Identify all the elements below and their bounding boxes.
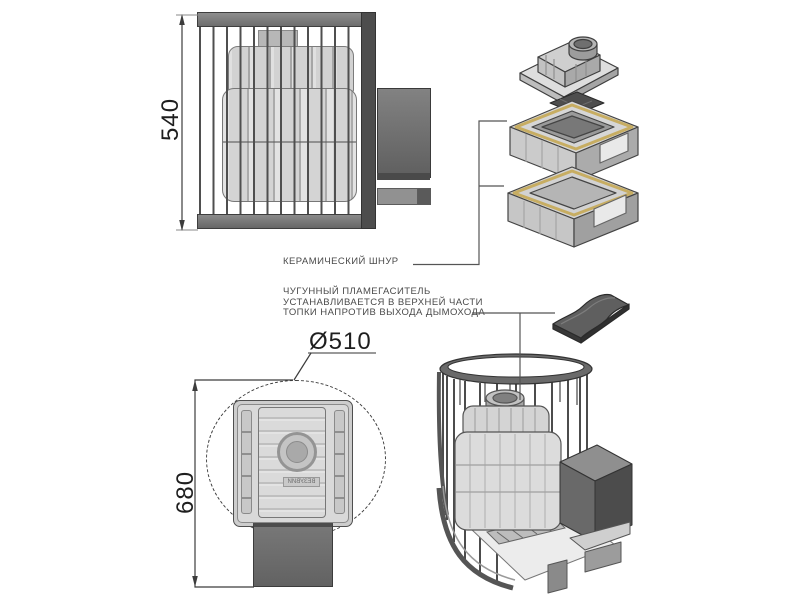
firebox-bottom-section xyxy=(508,167,638,247)
stone-cage-side xyxy=(197,12,376,229)
note-line-3: ТОПКИ НАПРОТИВ ВЫХОДА ДЫМОХОДА xyxy=(283,308,485,319)
left-rail xyxy=(241,410,252,514)
stove-top-plan: ВЕЗУВИЙ xyxy=(233,400,353,527)
side-view-figure: 540 xyxy=(0,0,450,240)
stove-technical-diagram: 540 xyxy=(0,0,800,600)
fuel-channel-plan xyxy=(253,523,333,587)
dimension-680-label: 680 xyxy=(172,474,198,514)
chimney-hole-ring xyxy=(277,432,317,472)
ceramic-cord-label: КЕРАМИЧЕСКИЙ ШНУР xyxy=(283,256,399,267)
fuel-channel-iso xyxy=(548,445,632,593)
channel-ledge xyxy=(377,173,430,180)
exploded-view-figure xyxy=(480,15,650,260)
cage-top-ring xyxy=(440,354,592,384)
top-view-figure: ВЕЗУВИЙ 680 Ø510 xyxy=(0,300,440,600)
dimension-540-label: 540 xyxy=(157,101,183,141)
chimney-hole xyxy=(286,441,308,463)
center-panel: ВЕЗУВИЙ xyxy=(258,407,326,518)
cage-bars xyxy=(199,27,359,214)
dimension-510-label: Ø510 xyxy=(309,328,372,356)
fuel-channel-side xyxy=(377,88,431,178)
stove-leg xyxy=(548,560,567,593)
chimney-opening-icon xyxy=(574,40,592,49)
flame-arrester-annotation: ЧУГУННЫЙ ПЛАМЕГАСИТЕЛЬ УСТАНАВЛИВАЕТСЯ В… xyxy=(283,287,485,319)
channel-lower-strip xyxy=(377,188,418,205)
right-rail xyxy=(334,410,345,514)
channel-strip-end xyxy=(418,188,431,205)
cage-right-post xyxy=(361,12,376,229)
brand-emboss: ВЕЗУВИЙ xyxy=(283,477,320,487)
ceramic-cord-annotation: КЕРАМИЧЕСКИЙ ШНУР xyxy=(283,257,399,268)
cage-bottom-band xyxy=(197,214,362,229)
cast-lid xyxy=(520,37,618,104)
note-line-1: ЧУГУННЫЙ ПЛАМЕГАСИТЕЛЬ xyxy=(283,287,485,298)
stove-body-iso xyxy=(455,390,561,530)
iso-view-figure xyxy=(425,280,640,600)
cage-top-band xyxy=(197,12,362,27)
